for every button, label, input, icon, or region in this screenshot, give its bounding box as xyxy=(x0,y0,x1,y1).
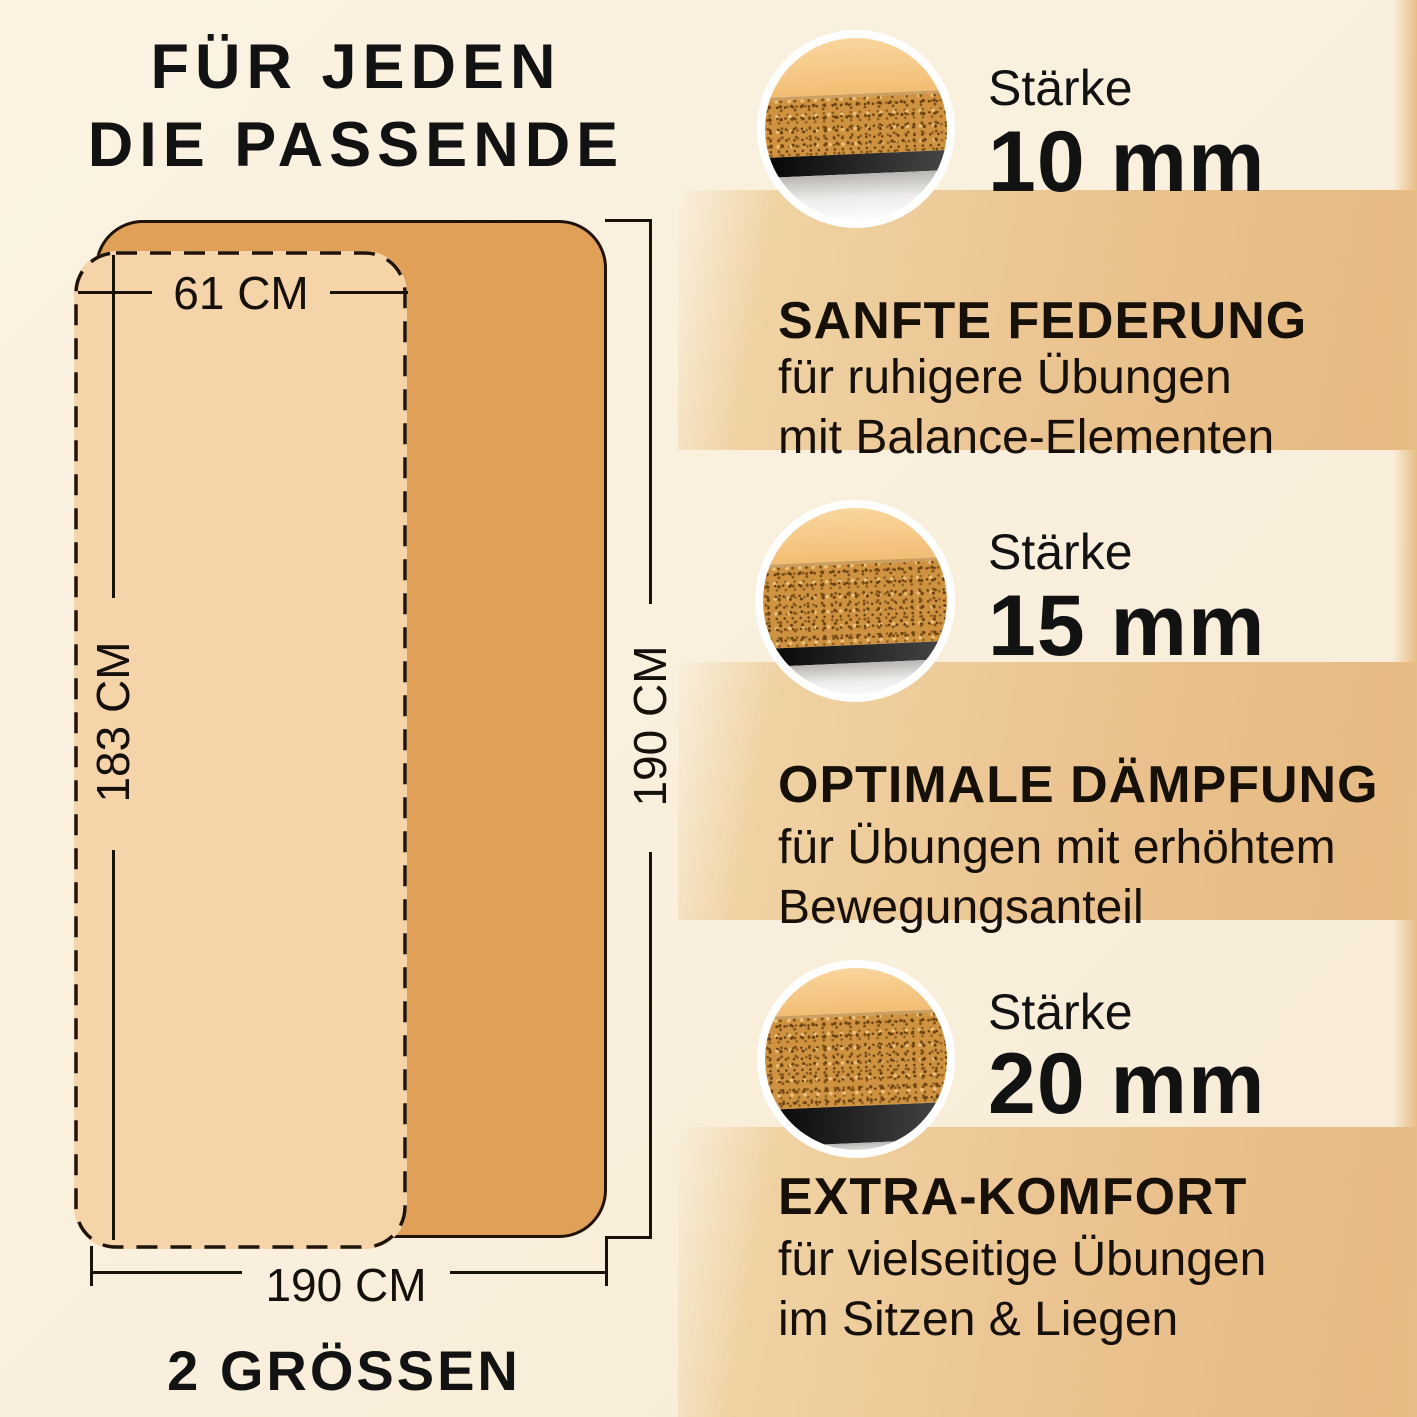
mat-cross-section-10mm-icon xyxy=(757,30,955,228)
option-heading-3: EXTRA-KOMFORT xyxy=(778,1168,1247,1226)
dim-label-small-height: 183 CM xyxy=(90,641,136,802)
dim-label-small-width: 61 CM xyxy=(173,270,308,316)
thickness-label-3: Stärke xyxy=(988,984,1133,1040)
thickness-label-2: Stärke xyxy=(988,524,1133,580)
dim-190b-ext-left xyxy=(90,1246,93,1286)
page-title-line2: DIE PASSENDE xyxy=(36,106,676,184)
option-desc-1-line1: für ruhigere Übungen xyxy=(778,348,1274,408)
option-heading-2: OPTIMALE DÄMPFUNG xyxy=(778,756,1379,814)
dim-190b-ext-right xyxy=(605,1236,608,1286)
background-under-mat xyxy=(757,169,955,228)
option-desc-1: für ruhigere Übungen mit Balance-Element… xyxy=(778,348,1274,468)
thickness-value-3: 20 mm xyxy=(988,1038,1266,1130)
dim-190b-line-right xyxy=(450,1271,607,1274)
thickness-value-2: 15 mm xyxy=(988,580,1266,672)
sizes-caption: 2 GRÖSSEN xyxy=(124,1338,564,1403)
dim-190r-line-top xyxy=(649,219,652,604)
page-title: FÜR JEDEN DIE PASSENDE xyxy=(36,28,676,184)
mat-sizes-infographic: FÜR JEDEN DIE PASSENDE 61 CM 183 CM 190 … xyxy=(0,0,1417,1417)
background-right-edge-gradient xyxy=(1393,0,1417,1417)
page-title-line1: FÜR JEDEN xyxy=(36,28,676,106)
dim-190r-connector-top xyxy=(605,219,652,222)
cork-foam-layer xyxy=(757,1011,955,1111)
dim-61-line-right xyxy=(330,291,408,294)
dim-61-line-left xyxy=(78,291,152,294)
smooth-surface-layer xyxy=(755,500,955,569)
thickness-value-1: 10 mm xyxy=(988,116,1266,208)
option-desc-3-line1: für vielseitige Übungen xyxy=(778,1230,1266,1290)
smooth-surface-layer xyxy=(757,30,955,102)
cork-foam-layer xyxy=(757,92,955,158)
dim-190r-line-bottom xyxy=(649,852,652,1238)
option-desc-2-line2: Bewegungsanteil xyxy=(778,878,1336,938)
option-desc-1-line2: mit Balance-Elementen xyxy=(778,408,1274,468)
mat-cross-section-20mm-icon xyxy=(757,960,955,1158)
dim-183-line-bottom xyxy=(112,850,115,1240)
option-heading-1: SANFTE FEDERUNG xyxy=(778,292,1307,350)
dim-190b-line-left xyxy=(90,1271,242,1274)
dim-190r-connector-bottom xyxy=(605,1236,652,1239)
option-desc-2: für Übungen mit erhöhtem Bewegungsanteil xyxy=(778,818,1336,938)
smooth-surface-layer xyxy=(757,960,955,1021)
dim-label-large-height: 190 CM xyxy=(627,645,673,806)
mat-cross-section-15mm-icon xyxy=(755,500,955,702)
option-desc-3: für vielseitige Übungen im Sitzen & Lieg… xyxy=(778,1230,1266,1350)
option-desc-2-line1: für Übungen mit erhöhtem xyxy=(778,818,1336,878)
dim-183-line-top xyxy=(112,255,115,598)
dim-label-large-width: 190 CM xyxy=(265,1262,426,1308)
option-desc-3-line2: im Sitzen & Liegen xyxy=(778,1290,1266,1350)
cork-foam-layer xyxy=(755,559,955,649)
thickness-label-1: Stärke xyxy=(988,60,1133,116)
